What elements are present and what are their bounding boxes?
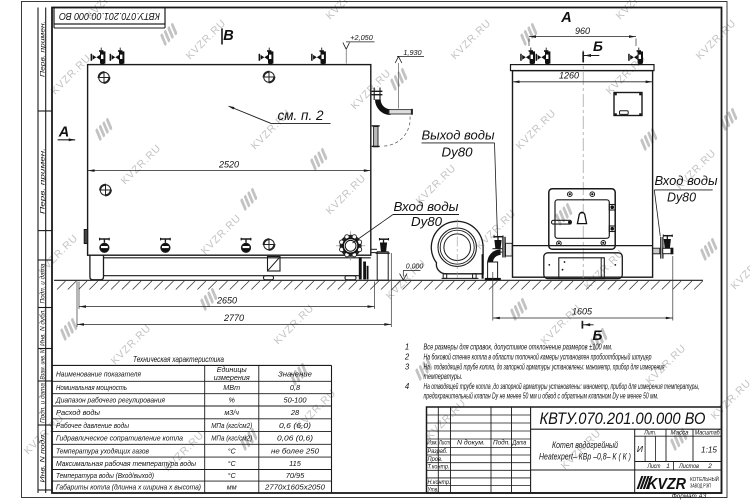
svg-text:Подп. и дата: Подп. и дата <box>39 263 47 303</box>
svg-text:температуры.: температуры. <box>424 372 463 381</box>
svg-text:°С: °С <box>228 446 237 455</box>
svg-text:Б: Б <box>593 327 603 343</box>
svg-text:Листов: Листов <box>678 463 700 470</box>
svg-text:Подп. и дата: Подп. и дата <box>39 383 47 423</box>
svg-text:Котел водогрейный: Котел водогрейный <box>552 440 618 451</box>
svg-text:960: 960 <box>575 26 590 36</box>
svg-text:Инв. N подл.: Инв. N подл. <box>39 432 47 482</box>
svg-text:Выход воды: Выход воды <box>422 128 495 143</box>
svg-text:Масса: Масса <box>671 429 690 436</box>
svg-text:Лит.: Лит. <box>643 429 656 436</box>
svg-text:Перв. примен.: Перв. примен. <box>40 148 47 214</box>
svg-text:КВТУ.070.201.00.000 ВО: КВТУ.070.201.00.000 ВО <box>59 10 160 21</box>
svg-text:А: А <box>58 125 69 141</box>
svg-text:Вход воды: Вход воды <box>394 199 459 214</box>
svg-text:На отводящей трубе котла ,до з: На отводящей трубе котла ,до запорной ар… <box>424 382 700 391</box>
svg-text:Вход воды: Вход воды <box>655 173 718 188</box>
svg-text:N докум.: N докум. <box>457 439 485 447</box>
svg-text:Изм.: Изм. <box>427 440 438 447</box>
svg-text:2: 2 <box>404 353 410 362</box>
svg-text:3: 3 <box>405 363 410 372</box>
svg-text:Б: Б <box>593 38 603 54</box>
svg-text:1: 1 <box>666 463 670 470</box>
svg-text:Утв.: Утв. <box>427 486 439 493</box>
svg-text:0.000: 0.000 <box>406 264 424 271</box>
svg-text:2650: 2650 <box>216 295 237 305</box>
svg-text:28: 28 <box>290 408 300 417</box>
svg-text:Т.контр.: Т.контр. <box>428 464 450 471</box>
svg-text:50-100: 50-100 <box>283 395 307 404</box>
svg-text:Все размеры для справок, допус: Все размеры для справок, допустимое откл… <box>424 343 613 352</box>
svg-text:Формат А3: Формат А3 <box>672 493 707 500</box>
svg-text:Dy80: Dy80 <box>411 215 442 229</box>
svg-text:А: А <box>560 10 571 26</box>
svg-text:1: 1 <box>405 343 409 352</box>
svg-text:1260: 1260 <box>559 71 579 81</box>
svg-text:м3/ч: м3/ч <box>224 408 239 417</box>
svg-text:Рабочее давление воды: Рабочее давление воды <box>56 421 129 430</box>
svg-text:Н.контр.: Н.контр. <box>428 479 451 486</box>
svg-text:%: % <box>228 395 235 404</box>
svg-text:2520: 2520 <box>218 159 239 169</box>
svg-text:Разраб.: Разраб. <box>428 447 448 455</box>
svg-text:ЗАВОД РЭП: ЗАВОД РЭП <box>690 484 711 490</box>
svg-text:Масштаб: Масштаб <box>695 429 720 436</box>
svg-text:Инв. N дубл.: Инв. N дубл. <box>39 309 47 346</box>
svg-text:Номинальная мощность: Номинальная мощность <box>56 383 127 392</box>
svg-text:Габариты котла (длинна х ширин: Габариты котла (длинна х ширина х высота… <box>56 483 201 492</box>
svg-text:Значение: Значение <box>278 370 312 379</box>
svg-text:Лист: Лист <box>647 463 661 470</box>
svg-text:Гидравлическое сопративление к: Гидравлическое сопративление котла <box>56 434 183 443</box>
svg-text:+2,050: +2,050 <box>350 33 373 42</box>
svg-text:°С: °С <box>228 459 237 468</box>
svg-text:70/95: 70/95 <box>286 471 305 480</box>
svg-text:Dy80: Dy80 <box>667 191 696 205</box>
svg-text:2: 2 <box>707 463 712 470</box>
svg-text:Перв. примен.: Перв. примен. <box>40 21 47 77</box>
svg-text:Пров.: Пров. <box>428 456 443 463</box>
svg-text:На подводящей трубе котла, д: На подводящей трубе котла, до запорной а… <box>424 363 666 372</box>
svg-text:KVZR: KVZR <box>647 476 686 493</box>
svg-text:И: И <box>637 444 644 454</box>
svg-text:2770х1605х2050: 2770х1605х2050 <box>264 483 326 492</box>
svg-text:1,930: 1,930 <box>403 48 421 57</box>
svg-text:мм: мм <box>227 483 237 492</box>
svg-text:Расход воды: Расход воды <box>56 408 101 417</box>
svg-text:Heatexpert– КВр –0,8– К ( К ): Heatexpert– КВр –0,8– К ( К ) <box>539 452 631 463</box>
svg-text:2770: 2770 <box>223 313 244 323</box>
svg-text:Техническая характеристика: Техническая характеристика <box>133 355 225 364</box>
svg-text:1:15: 1:15 <box>701 446 717 455</box>
svg-text:Максимальная рабочая температу: Максимальная рабочая температура воды <box>56 459 197 468</box>
svg-text:см. п. 2: см. п. 2 <box>278 108 324 123</box>
svg-text:0,06 (0,6): 0,06 (0,6) <box>277 434 314 443</box>
svg-text:0,8: 0,8 <box>290 383 301 392</box>
svg-text:КОТЕЛЬНЫЙ: КОТЕЛЬНЫЙ <box>690 475 719 483</box>
svg-text:В: В <box>223 28 233 44</box>
svg-text:МВт: МВт <box>223 383 240 392</box>
svg-text:Взам. инв. N: Взам. инв. N <box>40 349 47 379</box>
svg-text:°С: °С <box>228 471 237 480</box>
svg-text:МПа (кгс/см2): МПа (кгс/см2) <box>211 421 252 430</box>
svg-text:Наименование показателя: Наименование показателя <box>56 370 141 379</box>
svg-text:Диапазон рабочего регулировани: Диапазон рабочего регулирования <box>55 395 165 404</box>
svg-text:4: 4 <box>405 382 410 391</box>
svg-text:115: 115 <box>289 459 302 468</box>
svg-text:Дата: Дата <box>512 440 527 447</box>
svg-text:КВТУ.070.201.00.000 ВО: КВТУ.070.201.00.000 ВО <box>540 410 706 428</box>
svg-text:На боковой стенке котла в обла: На боковой стенке котла в области топочн… <box>424 353 652 362</box>
svg-text:измерения: измерения <box>214 373 250 382</box>
svg-text:Лист: Лист <box>438 440 450 447</box>
svg-text:Температура воды (Вход/выход): Температура воды (Вход/выход) <box>56 471 154 480</box>
svg-text:1605: 1605 <box>572 307 593 317</box>
svg-text:0,6 (6,0): 0,6 (6,0) <box>279 421 312 430</box>
svg-text:не более 250: не более 250 <box>271 446 320 455</box>
svg-text:Dy80: Dy80 <box>442 146 473 160</box>
svg-text:предохранительный клапан Dу н: предохранительный клапан Dу не менее 50 … <box>424 392 659 401</box>
svg-text:Подп.: Подп. <box>493 439 510 447</box>
svg-text:Температура уходящих газов: Температура уходящих газов <box>56 446 149 455</box>
svg-text:МПа (кгс/см2): МПа (кгс/см2) <box>211 434 252 443</box>
